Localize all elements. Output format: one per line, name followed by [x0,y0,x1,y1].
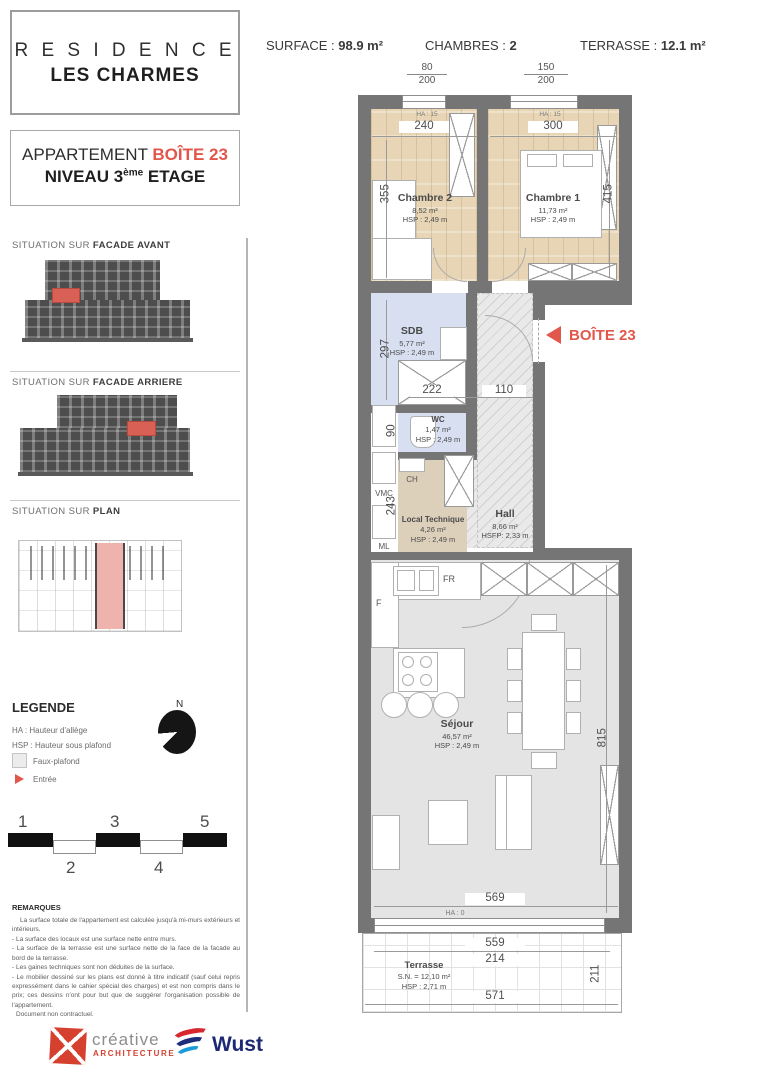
dim-569: 569 [465,893,525,905]
dining-chair [566,712,581,734]
stool [381,692,407,718]
tv-unit [428,800,468,845]
dim-297: 297 [380,329,392,369]
wardrobe [600,765,619,865]
highlighted-unit-plan [95,543,125,629]
wardrobe [528,263,572,281]
remark-line: - Le mobilier dessiné sur les plans est … [12,973,240,1011]
dim-355: 355 [380,174,392,214]
dim-211: 211 [590,954,602,994]
section-plan-title: SITUATION SUR PLAN [12,506,120,517]
dim-ha0: HA : 0 [425,910,485,917]
remarks-body: La surface totale de l'appartement est c… [12,916,240,1020]
dim-240: 240 [399,121,449,133]
room-name: Terrasse [385,960,463,972]
scale-1: 1 [18,812,27,832]
kitchen-tall-units [573,562,619,596]
dining-table [522,632,565,750]
rooms-label: CHAMBRES : [425,38,506,53]
dim-571: 571 [465,991,525,1003]
dining-chair [507,712,522,734]
surface-stat: SURFACE : 98.9 m² [266,38,383,53]
sliding-door-terrasse [374,918,605,933]
stool [407,692,433,718]
highlighted-unit-front [52,288,80,303]
north-label: N [176,699,183,710]
wardrobe [449,113,475,197]
dim-415: 415 [603,174,615,214]
scale-2: 2 [66,858,75,878]
level-prefix: NIVEAU 3 [45,167,123,186]
boiler-box [399,458,425,472]
dim-value: 200 [407,75,447,87]
legend-item-fauxplafond: Faux-plafond [33,757,80,766]
dim-559: 559 [465,938,525,950]
terrace-value: 12.1 m² [661,38,706,53]
legend-item-ha: HA : Hauteur d'allège [12,726,87,735]
wust-name: Wust [212,1033,263,1057]
room-label-sejour: Séjour 46,57 m² HSP : 2,49 m [412,718,502,751]
kitchen-tall-units [527,562,573,596]
stool [433,692,459,718]
project-name-line1: R E S I D E N C E [12,40,238,62]
label-fr: FR [443,574,473,584]
rule-2 [10,500,240,501]
remark-line: - La surface de la terrasse est une surf… [12,944,240,963]
rule-1 [10,371,240,372]
room-name: WC [408,415,468,425]
burner [420,656,432,668]
room-name: Chambre 2 [385,192,465,206]
dim-214: 214 [465,954,525,966]
room-label-chambre1: Chambre 1 11,73 m² HSP : 2,49 m [513,192,593,225]
room-height: HSP : 2,49 m [385,215,465,225]
north-compass-icon [158,710,196,754]
apartment-prefix: APPARTEMENT [22,145,148,164]
label-ch: CH [399,475,425,484]
room-height: HSP : 2,49 m [408,435,468,445]
creative-name: créative [92,1030,160,1050]
remark-line: Document non contractuel. [12,1010,240,1019]
apartment-box: APPARTEMENT BOÎTE 23 NIVEAU 3ème ETAGE [10,130,240,206]
hall-wardrobe [444,455,474,507]
legend-item-entree: Entrée [33,775,57,784]
window-chambre1 [510,95,578,109]
terrace-label: TERRASSE : [580,38,657,53]
remarks-title: REMARQUES [12,903,61,912]
pillow [527,154,557,167]
room-area: 8,52 m² [385,206,465,216]
creative-sub: ARCHITECTURE [93,1049,175,1058]
section-name: FACADE AVANT [93,240,170,251]
highlighted-unit-rear [127,421,156,436]
room-name: Chambre 1 [513,192,593,206]
section-facade-front-title: SITUATION SUR FACADE AVANT [12,240,170,251]
dim-110: 110 [482,385,526,397]
surface-label: SURFACE : [266,38,335,53]
scale-5: 5 [200,812,209,832]
room-height: HSP : 2,49 m [513,215,593,225]
section-name: FACADE ARRIERE [93,377,183,388]
entry-door-line [538,318,539,364]
faux-plafond-swatch [12,753,27,768]
room-label-hall: Hall 8,66 m² HSFP: 2,33 m [470,508,540,541]
room-height: HSP : 2,49 m [393,535,473,545]
bed-chambre2 [372,238,432,280]
burner [402,656,414,668]
section-prefix: SITUATION SUR [12,377,90,388]
level-suffix: ETAGE [148,167,205,186]
ha-label: HA : 15 [405,112,449,119]
window1-dim: 80 200 [407,62,447,87]
burner [420,674,432,686]
dim-value: 200 [524,75,568,87]
room-area: 46,57 m² [412,732,502,742]
section-prefix: SITUATION SUR [12,506,90,517]
dining-chair [531,752,557,769]
room-name: Hall [470,508,540,522]
project-name-line2: LES CHARMES [12,65,238,87]
terrace-stat: TERRASSE : 12.1 m² [580,38,706,53]
sink-basin [397,570,415,591]
dining-chair [566,648,581,670]
remark-line: - Les gaines techniques sont non déduite… [12,963,240,972]
bathtub [398,360,466,405]
entree-arrow-icon [15,774,24,784]
sidebar-divider [246,238,248,1012]
kitchen-tall-units [481,562,527,596]
rooms-value: 2 [510,38,517,53]
sink-drainer [419,570,434,591]
room-area: 11,73 m² [513,206,593,216]
remark-line: La surface totale de l'appartement est c… [12,916,240,935]
dim-243: 243 [386,486,398,526]
plan-sheet: R E S I D E N C E LES CHARMES SURFACE : … [0,0,763,1080]
dining-chair [507,680,522,702]
dim-222: 222 [410,385,454,397]
room-area: 4,26 m² [393,525,473,535]
room-label-terrasse: Terrasse S.N. = 12,10 m² HSP : 2,71 m [385,960,463,992]
scale-4: 4 [154,858,163,878]
scale-3: 3 [110,812,119,832]
cabinet [372,815,400,870]
room-name: Local Technique [393,515,473,525]
dining-chair [566,680,581,702]
level-sup: ème [123,167,143,178]
dim-value: 150 [524,62,568,75]
window-chambre2 [402,95,446,109]
room-height: HSP : 2,49 m [412,741,502,751]
room-name: Séjour [412,718,502,732]
room-label-lt: Local Technique 4,26 m² HSP : 2,49 m [393,515,473,545]
room-height: HSFP: 2,33 m [470,531,540,541]
dim-300: 300 [528,121,578,133]
section-prefix: SITUATION SUR [12,240,90,251]
surface-value: 98.9 m² [338,38,383,53]
entry-arrow-icon [546,326,561,344]
room-area: S.N. = 12,10 m² [385,972,463,982]
legend-item-hsp: HSP : Hauteur sous plafond [12,741,111,750]
room-area: 8,66 m² [470,522,540,532]
section-facade-rear-title: SITUATION SUR FACADE ARRIERE [12,377,183,388]
section-name: PLAN [93,506,120,517]
pillow [563,154,593,167]
label-f: F [376,598,396,608]
remark-line: - La surface des locaux est une surface … [12,935,240,944]
entry-label: BOÎTE 23 [569,327,644,344]
burner [402,674,414,686]
sofa-back [495,775,507,850]
wardrobe [572,263,617,281]
dim-90: 90 [386,413,398,449]
legend-title: LEGENDE [12,700,75,715]
room-height: HSP : 2,71 m [385,982,463,992]
room-label-chambre2: Chambre 2 8,52 m² HSP : 2,49 m [385,192,465,225]
window2-dim: 150 200 [524,62,568,87]
dining-chair [507,648,522,670]
dim-value: 80 [407,62,447,75]
room-label-wc: WC 1,47 m² HSP : 2,49 m [408,415,468,445]
shaft [372,452,396,484]
project-title-box: R E S I D E N C E LES CHARMES [10,10,240,115]
dining-chair [531,614,557,631]
room-area: 1,47 m² [408,425,468,435]
rooms-stat: CHAMBRES : 2 [425,38,517,53]
apartment-unit: BOÎTE 23 [152,145,228,164]
washbasin [440,327,467,360]
dim-815: 815 [597,718,609,758]
ha-label: HA : 15 [522,112,578,119]
